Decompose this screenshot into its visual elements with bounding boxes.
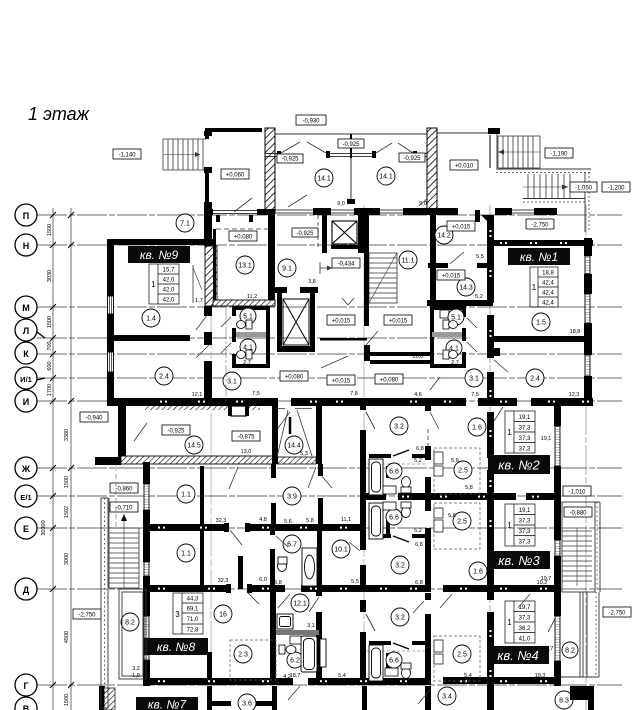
svg-text:+0,010: +0,010 [455, 164, 474, 170]
svg-text:5.1: 5.1 [243, 314, 253, 321]
svg-text:2.5: 2.5 [458, 468, 468, 475]
svg-text:10.1: 10.1 [334, 547, 348, 554]
svg-text:9,0: 9,0 [337, 201, 345, 207]
svg-text:5,4: 5,4 [338, 673, 346, 679]
svg-text:4,6: 4,6 [414, 392, 422, 398]
svg-text:Л: Л [23, 326, 29, 336]
svg-text:-0,925: -0,925 [296, 231, 314, 237]
svg-text:2.3: 2.3 [238, 652, 248, 659]
svg-text:3030: 3030 [47, 270, 53, 282]
svg-text:К: К [23, 349, 29, 359]
svg-text:П: П [23, 211, 29, 221]
svg-text:+0,015: +0,015 [442, 274, 461, 280]
svg-text:В: В [23, 704, 30, 710]
svg-text:71,0: 71,0 [187, 617, 199, 623]
svg-text:30300: 30300 [41, 520, 47, 535]
svg-text:5,2: 5,2 [414, 528, 422, 534]
svg-text:1500: 1500 [64, 694, 70, 706]
svg-text:7,8: 7,8 [350, 391, 358, 397]
svg-text:2,7: 2,7 [451, 360, 459, 366]
svg-text:1.1: 1.1 [181, 492, 191, 499]
svg-text:3.6: 3.6 [242, 701, 252, 708]
svg-text:12,1: 12,1 [192, 392, 203, 398]
svg-text:8.2: 8.2 [565, 648, 575, 655]
svg-text:+0,015: +0,015 [389, 319, 408, 325]
svg-text:3.1: 3.1 [227, 379, 237, 386]
svg-text:36,2: 36,2 [519, 626, 531, 632]
svg-text:кв. №1: кв. №1 [520, 250, 558, 264]
svg-text:6,8: 6,8 [415, 580, 423, 586]
svg-text:Е/1: Е/1 [20, 493, 31, 502]
svg-text:+0,015: +0,015 [332, 319, 351, 325]
svg-text:Д: Д [23, 585, 30, 595]
svg-text:37,3: 37,3 [519, 529, 531, 535]
svg-text:кв. №8: кв. №8 [157, 640, 196, 654]
svg-text:-1,200: -1,200 [607, 186, 625, 192]
svg-text:1: 1 [507, 521, 512, 530]
svg-text:1500: 1500 [47, 224, 53, 236]
svg-text:-0,925: -0,925 [403, 156, 421, 162]
svg-text:42,4: 42,4 [542, 301, 554, 307]
svg-text:37,3: 37,3 [519, 519, 531, 525]
svg-text:1 этаж: 1 этаж [28, 104, 91, 124]
svg-text:1: 1 [507, 618, 512, 627]
svg-text:1500: 1500 [64, 476, 70, 488]
svg-text:-0,930: -0,930 [302, 119, 320, 125]
svg-text:Г: Г [23, 681, 28, 691]
svg-text:-0,860: -0,860 [115, 487, 133, 493]
svg-text:3.9: 3.9 [287, 494, 297, 501]
svg-text:72,8: 72,8 [187, 628, 199, 634]
svg-text:3.2: 3.2 [395, 615, 405, 622]
svg-text:1.4: 1.4 [146, 316, 156, 323]
svg-text:37,3: 37,3 [519, 540, 531, 546]
svg-text:И: И [23, 397, 29, 407]
svg-text:-0,710: -0,710 [115, 506, 133, 512]
svg-text:1: 1 [507, 428, 512, 437]
svg-text:-1,140: -1,140 [118, 153, 136, 159]
svg-text:1.5: 1.5 [536, 320, 546, 327]
svg-text:11.1: 11.1 [401, 258, 414, 265]
svg-text:3000: 3000 [64, 553, 70, 565]
svg-text:32,3: 32,3 [216, 518, 227, 524]
svg-text:5,3: 5,3 [300, 451, 308, 457]
svg-text:5,8: 5,8 [274, 580, 282, 586]
svg-text:7,5: 7,5 [471, 392, 479, 398]
svg-text:-0,434: -0,434 [337, 262, 355, 268]
svg-text:1.6: 1.6 [473, 569, 483, 576]
svg-text:кв. №3: кв. №3 [498, 553, 540, 568]
svg-text:+0,080: +0,080 [285, 375, 304, 381]
svg-text:69,1: 69,1 [187, 607, 199, 613]
svg-text:5,6: 5,6 [448, 513, 456, 519]
svg-text:+0,015: +0,015 [332, 379, 351, 385]
svg-text:-1,190: -1,190 [550, 152, 568, 158]
svg-text:3300: 3300 [64, 429, 70, 441]
svg-text:14.1: 14.1 [379, 174, 393, 181]
svg-text:4500: 4500 [64, 631, 70, 643]
svg-text:-0,925: -0,925 [167, 429, 185, 435]
svg-text:13.1: 13.1 [238, 263, 252, 270]
svg-text:37,3: 37,3 [519, 616, 531, 622]
svg-text:6.6: 6.6 [389, 658, 399, 665]
svg-text:2.5: 2.5 [457, 519, 467, 526]
svg-text:10,2: 10,2 [537, 580, 548, 586]
svg-text:-2,750: -2,750 [608, 611, 626, 617]
svg-text:6.7: 6.7 [287, 542, 297, 549]
svg-text:4,8: 4,8 [259, 517, 267, 523]
svg-text:5,6: 5,6 [451, 458, 459, 464]
svg-text:20,0: 20,0 [413, 354, 424, 360]
svg-text:37,3: 37,3 [519, 447, 531, 453]
svg-text:42,4: 42,4 [542, 281, 554, 287]
svg-text:42,0: 42,0 [163, 288, 175, 294]
svg-text:12,3: 12,3 [569, 392, 580, 398]
svg-text:1: 1 [151, 280, 156, 289]
svg-text:6.2: 6.2 [290, 658, 300, 665]
svg-text:14.5: 14.5 [187, 443, 201, 450]
svg-text:+0,080: +0,080 [380, 378, 399, 384]
svg-text:3,1: 3,1 [307, 623, 315, 629]
svg-text:-2,750: -2,750 [78, 613, 96, 619]
svg-text:19,1: 19,1 [519, 415, 531, 421]
svg-text:1.1: 1.1 [181, 551, 191, 558]
svg-text:700: 700 [47, 341, 53, 350]
svg-text:кв. №4: кв. №4 [497, 648, 538, 663]
svg-text:42,0: 42,0 [163, 298, 175, 304]
svg-text:3.4: 3.4 [442, 694, 452, 701]
svg-text:-0,880: -0,880 [569, 511, 587, 517]
svg-text:+0,080: +0,080 [234, 235, 253, 241]
svg-text:5,2: 5,2 [475, 294, 483, 300]
svg-text:Н: Н [23, 241, 30, 251]
svg-text:2,7: 2,7 [243, 360, 251, 366]
svg-text:15,7: 15,7 [163, 268, 175, 274]
svg-text:4,2: 4,2 [283, 674, 291, 680]
svg-text:+0,060: +0,060 [226, 173, 245, 179]
svg-text:5,2: 5,2 [414, 458, 422, 464]
svg-text:14.3: 14.3 [459, 285, 473, 292]
svg-text:600: 600 [47, 361, 53, 370]
svg-text:13,0: 13,0 [241, 449, 252, 455]
svg-text:11,2: 11,2 [247, 294, 257, 300]
svg-text:+0,015: +0,015 [452, 225, 471, 231]
svg-text:-0,925: -0,925 [281, 157, 299, 163]
svg-text:кв. №9: кв. №9 [140, 248, 179, 262]
svg-text:-0,925: -0,925 [342, 142, 360, 148]
svg-text:-1,010: -1,010 [568, 490, 586, 496]
svg-text:18,8: 18,8 [542, 271, 554, 277]
svg-text:42,4: 42,4 [542, 291, 554, 297]
svg-text:3: 3 [175, 610, 180, 619]
svg-text:6.6: 6.6 [389, 515, 399, 522]
svg-text:5,8: 5,8 [465, 485, 473, 491]
svg-text:19,7: 19,7 [519, 605, 531, 611]
svg-text:3.2: 3.2 [394, 424, 404, 431]
svg-text:19,7: 19,7 [543, 646, 554, 652]
svg-text:-0,875: -0,875 [237, 435, 255, 441]
svg-text:5,5: 5,5 [476, 254, 484, 260]
svg-text:9.1: 9.1 [282, 266, 292, 273]
svg-text:5,4: 5,4 [464, 673, 472, 679]
svg-text:42,0: 42,0 [163, 278, 175, 284]
svg-text:2.5: 2.5 [457, 652, 467, 659]
svg-text:3,2: 3,2 [132, 666, 140, 672]
svg-text:18,7: 18,7 [290, 673, 301, 679]
svg-text:19,3: 19,3 [535, 673, 546, 679]
svg-text:2.4: 2.4 [159, 374, 169, 381]
svg-text:19,1: 19,1 [541, 436, 552, 442]
svg-text:М: М [22, 303, 30, 313]
svg-text:И/1: И/1 [20, 375, 32, 384]
svg-text:12.1: 12.1 [293, 601, 307, 608]
svg-text:5,6: 5,6 [284, 519, 292, 525]
svg-text:3.2: 3.2 [395, 563, 405, 570]
svg-text:3,8: 3,8 [308, 279, 316, 285]
svg-text:1700: 1700 [47, 384, 53, 396]
svg-text:14.1: 14.1 [317, 176, 331, 183]
svg-text:11,1: 11,1 [341, 517, 351, 523]
svg-text:1500: 1500 [47, 316, 53, 328]
svg-text:2.4: 2.4 [530, 376, 540, 383]
svg-text:8.2: 8.2 [125, 620, 135, 627]
svg-text:Е: Е [23, 524, 29, 534]
svg-text:3.1: 3.1 [469, 376, 479, 383]
svg-text:32,3: 32,3 [218, 578, 229, 584]
svg-text:1.6: 1.6 [472, 425, 482, 432]
svg-text:7.1: 7.1 [180, 221, 190, 228]
svg-text:14.2: 14.2 [437, 233, 451, 240]
svg-text:6.6: 6.6 [389, 469, 399, 476]
svg-text:8.3: 8.3 [559, 698, 569, 705]
svg-text:9,0: 9,0 [419, 201, 427, 207]
svg-text:44,3: 44,3 [187, 597, 199, 603]
svg-text:6,8: 6,8 [415, 542, 423, 548]
svg-text:37,3: 37,3 [519, 436, 531, 442]
svg-text:19,1: 19,1 [519, 508, 531, 514]
svg-text:1,7: 1,7 [195, 298, 203, 304]
svg-text:-2,750: -2,750 [531, 223, 549, 229]
svg-text:16: 16 [219, 612, 227, 619]
svg-text:1: 1 [532, 283, 537, 292]
svg-text:18,8: 18,8 [570, 329, 581, 335]
svg-text:5,8: 5,8 [306, 518, 314, 524]
svg-text:1502: 1502 [64, 506, 70, 518]
svg-text:кв. №2: кв. №2 [498, 458, 540, 473]
svg-text:7,5: 7,5 [252, 391, 260, 397]
svg-text:кв. №7: кв. №7 [148, 698, 188, 710]
svg-text:37,3: 37,3 [519, 426, 531, 432]
svg-text:-0,940: -0,940 [85, 416, 103, 422]
svg-text:41,0: 41,0 [519, 637, 531, 643]
svg-text:5,5: 5,5 [351, 579, 359, 585]
svg-text:6,8: 6,8 [416, 446, 424, 452]
svg-text:Ж: Ж [21, 464, 31, 474]
svg-text:6,0: 6,0 [259, 577, 267, 583]
svg-text:14.4: 14.4 [287, 443, 301, 450]
svg-text:-1,050: -1,050 [575, 186, 593, 192]
